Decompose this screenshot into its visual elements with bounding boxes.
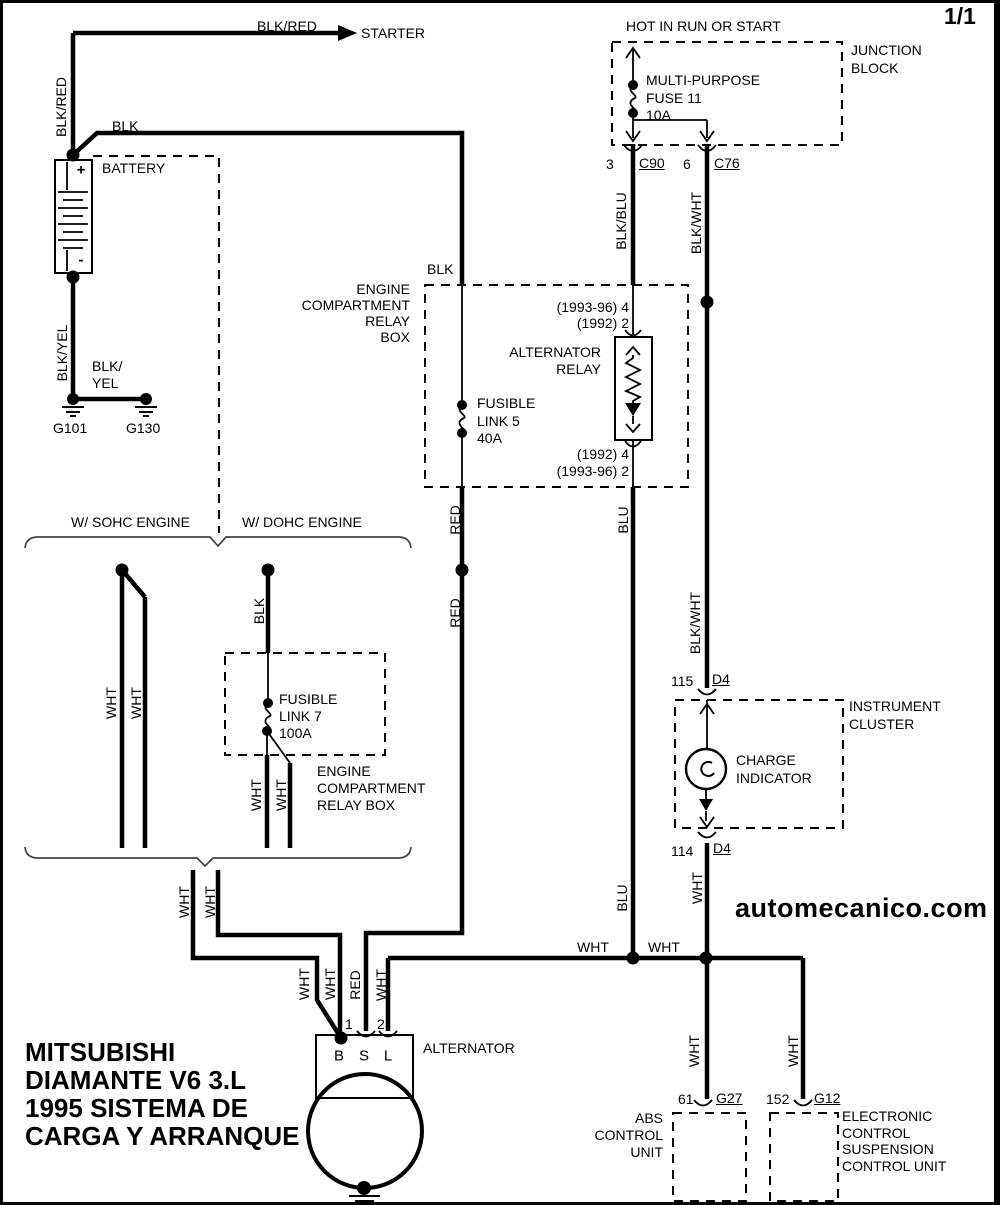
- alt-pin-1-label: 1: [345, 1016, 353, 1033]
- title-block: MITSUBISHI DIAMANTE V6 3.L 1995 SISTEMA …: [25, 1038, 299, 1150]
- relay-pins-bottom: (1992) 4 (1993-96) 2: [509, 446, 629, 479]
- alt-terminal-l: L: [384, 1048, 392, 1065]
- connector-g27-label: G27: [716, 1090, 742, 1107]
- wiring-diagram: BLK/RED STARTER BLK/RED BLK BATTERY + - …: [0, 0, 1000, 1205]
- alt-b-wht1-label: WHT: [296, 968, 312, 1000]
- sohc-engine-label: W/ SOHC ENGINE: [71, 514, 190, 531]
- brace-bottom: [25, 847, 411, 866]
- connector-g12: [794, 1100, 812, 1106]
- alt-terminal-b: B: [334, 1048, 344, 1065]
- pin-61-label: 61: [678, 1091, 694, 1108]
- instrument-cluster-label: INSTRUMENT CLUSTER: [849, 698, 941, 733]
- fuse-11-label: MULTI-PURPOSE FUSE 11 10A: [646, 72, 760, 125]
- connector-c90-label: C90: [639, 155, 665, 172]
- pin-114-label: 114: [671, 843, 693, 860]
- dohc-blk-wire-label: BLK: [251, 598, 267, 624]
- dohc-wht2-label: WHT: [273, 779, 289, 811]
- abs-wht-wire-label: WHT: [686, 1035, 702, 1067]
- connector-g27: [694, 1100, 712, 1106]
- ecs-unit-box: [770, 1113, 838, 1201]
- merged-wht2-label: WHT: [202, 886, 218, 918]
- dohc-engine-label: W/ DOHC ENGINE: [242, 514, 362, 531]
- abs-unit-box: [673, 1113, 746, 1201]
- blkred-vertical-wire-label: BLK/RED: [53, 77, 69, 137]
- pin-3-label: 3: [606, 156, 614, 173]
- brace-top: [25, 537, 411, 548]
- ecs-wht-wire-label: WHT: [785, 1035, 801, 1067]
- red-wire-label-upper: RED: [447, 505, 463, 535]
- alt-l-wht-label: WHT: [373, 969, 389, 1001]
- pin-152-label: 152: [766, 1091, 789, 1108]
- bus-wht-left-label: WHT: [577, 939, 609, 956]
- alt-pin-2-label: 2: [377, 1016, 385, 1033]
- blu-wire-label-upper: BLU: [615, 506, 631, 533]
- ground-g130: [135, 407, 157, 416]
- arrow-down-cluster: [700, 817, 714, 827]
- connector-d4-bottom: [698, 832, 716, 838]
- blkyel-link-label: BLK/ YEL: [92, 358, 122, 391]
- blkblu-wire-label: BLK/BLU: [613, 192, 629, 250]
- hot-in-run-header: HOT IN RUN OR START: [626, 18, 781, 35]
- charge-indicator-label: CHARGE INDICATOR: [736, 752, 812, 787]
- blk-wire-label: BLK: [112, 118, 138, 135]
- junction-block-label: JUNCTION BLOCK: [851, 41, 922, 77]
- blkwht-wire-label-mid: BLK/WHT: [687, 592, 703, 654]
- relay-pins-top: (1993-96) 4 (1992) 2: [509, 299, 629, 331]
- pin-6-label: 6: [683, 156, 691, 173]
- battery-label: BATTERY: [102, 160, 165, 177]
- alternator-ground: [349, 1196, 380, 1205]
- battery-plus: +: [77, 162, 86, 179]
- diode-symbol: [699, 799, 713, 811]
- red-wire-label-lower: RED: [447, 598, 463, 628]
- ground-g101-label: G101: [53, 420, 87, 437]
- pin-115-label: 115: [671, 673, 693, 690]
- blkyel-wire-label: BLK/YEL: [54, 325, 70, 382]
- abs-unit-label: ABS CONTROL UNIT: [563, 1110, 663, 1161]
- connector-g12-label: G12: [814, 1090, 840, 1107]
- cluster-out-wht-label: WHT: [689, 872, 705, 904]
- bus-wht-right-label: WHT: [648, 939, 680, 956]
- alt-b-wht2-label: WHT: [322, 968, 338, 1000]
- relay-box-top-label: ENGINE COMPARTMENT RELAY BOX: [280, 281, 410, 345]
- variant-braces: [25, 537, 411, 866]
- ecs-unit-label: ELECTRONIC CONTROL SUSPENSION CONTROL UN…: [842, 1108, 946, 1174]
- watermark: automecanico.com: [735, 900, 988, 917]
- alt-s-red-label: RED: [347, 970, 363, 1000]
- merged-wht1-label: WHT: [176, 886, 192, 918]
- ground-g101: [62, 407, 84, 416]
- ground-g130-label: G130: [126, 420, 160, 437]
- connector-d4-top: [698, 689, 716, 695]
- connector-d4-top-label: D4: [712, 671, 730, 688]
- alternator-relay-label: ALTERNATOR RELAY: [481, 344, 601, 377]
- blkwht-wire-label-top: BLK/WHT: [688, 192, 704, 254]
- battery-minus: -: [79, 252, 84, 269]
- page-number: 1/1: [944, 8, 976, 25]
- starter-label: STARTER: [361, 25, 425, 42]
- sohc-wht2-label: WHT: [128, 687, 144, 719]
- charge-indicator-lamp: [686, 749, 726, 811]
- alt-terminal-s: S: [359, 1048, 369, 1065]
- blu-wire-label-lower: BLU: [614, 884, 630, 911]
- alternator-label: ALTERNATOR: [423, 1040, 515, 1057]
- connector-d4-bottom-label: D4: [713, 840, 731, 857]
- starter-feed-wire-label: BLK/RED: [257, 18, 317, 35]
- connector-c76-label: C76: [714, 155, 740, 172]
- fusible-link-7-label: FUSIBLE LINK 7 100A: [279, 691, 337, 742]
- alternator-relay-symbol: [615, 337, 652, 440]
- dashed-boxes: [93, 42, 843, 1201]
- starter-arrow: [338, 25, 357, 41]
- blk-entry-wire-label: BLK: [427, 261, 453, 278]
- connector-symbols: [357, 145, 812, 1106]
- wiring-graphics: [0, 0, 1000, 1205]
- dohc-wht1-label: WHT: [248, 779, 264, 811]
- relay-box-bottom-label: ENGINE COMPARTMENT RELAY BOX: [317, 763, 425, 814]
- battery-symbol: [55, 160, 92, 273]
- battery-dashed-divider: [93, 156, 219, 533]
- sohc-wht1-label: WHT: [103, 687, 119, 719]
- fusible-link-5-label: FUSIBLE LINK 5 40A: [477, 395, 535, 448]
